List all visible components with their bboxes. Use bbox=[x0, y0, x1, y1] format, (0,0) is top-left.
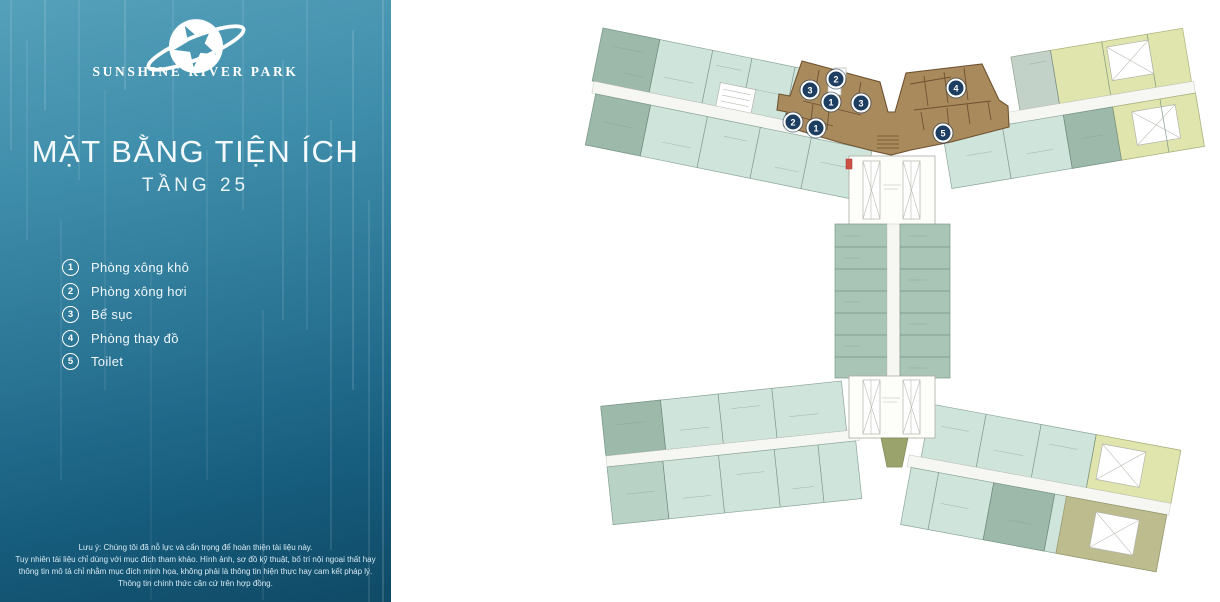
amenity-legend: 1 Phòng xông khô 2 Phòng xông hơi 3 Bể s… bbox=[62, 259, 189, 377]
legend-item: 2 Phòng xông hơi bbox=[62, 283, 189, 300]
legend-item: 1 Phòng xông khô bbox=[62, 259, 189, 276]
disclaimer-line: Tuy nhiên tài liệu chỉ dùng với mục đích… bbox=[0, 554, 391, 566]
wing-bottom-right bbox=[897, 402, 1181, 572]
brand-panel: SUNSHINE RIVER PARK MẶT BẰNG TIỆN ÍCH TẦ… bbox=[0, 0, 391, 602]
legend-number-badge: 5 bbox=[62, 353, 79, 370]
legend-item: 5 Toilet bbox=[62, 353, 189, 370]
legend-number-badge: 3 bbox=[62, 306, 79, 323]
plan-marker-jacuzzi: 3 bbox=[801, 81, 820, 100]
central-spine bbox=[835, 156, 950, 467]
legend-item: 3 Bể sục bbox=[62, 306, 189, 323]
plan-marker-sauna: 2 bbox=[827, 70, 846, 89]
legend-label: Toilet bbox=[91, 354, 123, 369]
legend-label: Phòng xông hơi bbox=[91, 284, 187, 299]
plan-marker-toilet: 5 bbox=[934, 124, 953, 143]
floor-subtitle: TẦNG 25 bbox=[0, 175, 391, 197]
disclaimer-line: thông tin mô tả chỉ nhằm mục đích minh h… bbox=[0, 566, 391, 578]
legend-item: 4 Phòng thay đồ bbox=[62, 330, 189, 347]
fire-point-marker bbox=[846, 159, 852, 169]
equalizer-bars-decoration bbox=[0, 0, 391, 602]
legal-disclaimer: Lưu ý: Chúng tôi đã nỗ lực và cẩn trọng … bbox=[0, 542, 391, 590]
legend-number-badge: 1 bbox=[62, 259, 79, 276]
plan-marker-dry-sauna: 1 bbox=[807, 119, 826, 138]
disclaimer-line: Thông tin chính thức căn cứ trên hợp đồn… bbox=[0, 578, 391, 590]
legend-label: Phòng xông khô bbox=[91, 260, 189, 275]
legend-number-badge: 4 bbox=[62, 330, 79, 347]
plan-marker-dry-sauna: 1 bbox=[822, 93, 841, 112]
center-garden-wedge bbox=[881, 438, 908, 467]
legend-number-badge: 2 bbox=[62, 283, 79, 300]
plan-marker-steam-room: 2 bbox=[784, 113, 803, 132]
plan-marker-changing-room: 4 bbox=[947, 79, 966, 98]
page-title: MẶT BẰNG TIỆN ÍCH bbox=[0, 134, 391, 170]
legend-label: Phòng thay đồ bbox=[91, 331, 179, 346]
wing-bottom-left bbox=[601, 380, 866, 525]
legend-label: Bể sục bbox=[91, 307, 133, 322]
disclaimer-line: Lưu ý: Chúng tôi đã nỗ lực và cẩn trọng … bbox=[0, 542, 391, 554]
brand-name: SUNSHINE RIVER PARK bbox=[0, 64, 391, 80]
plan-marker-jacuzzi: 3 bbox=[852, 94, 871, 113]
